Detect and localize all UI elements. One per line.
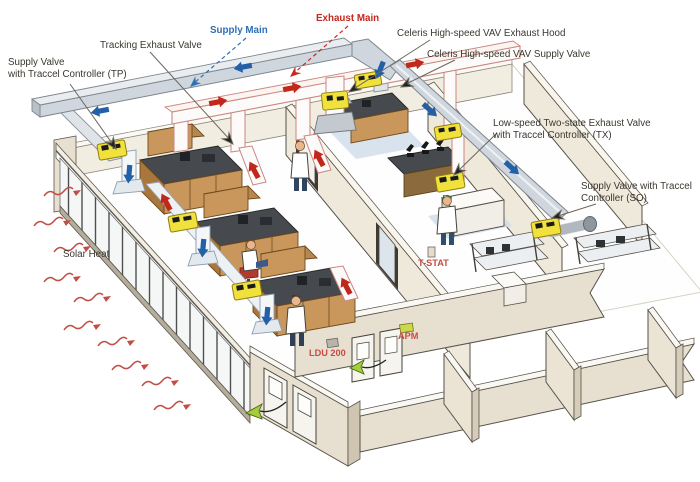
supply-duct-end-cap xyxy=(584,217,597,232)
diagram-canvas xyxy=(0,0,700,482)
lab-hvac-diagram: Supply Valve with Traccel Controller (TP… xyxy=(0,0,700,482)
apm-device xyxy=(400,323,414,333)
t-stat-device xyxy=(428,247,435,257)
corridor-door-1 xyxy=(352,334,374,382)
ldu-200-device xyxy=(326,338,338,347)
corridor-door-2 xyxy=(380,328,402,376)
